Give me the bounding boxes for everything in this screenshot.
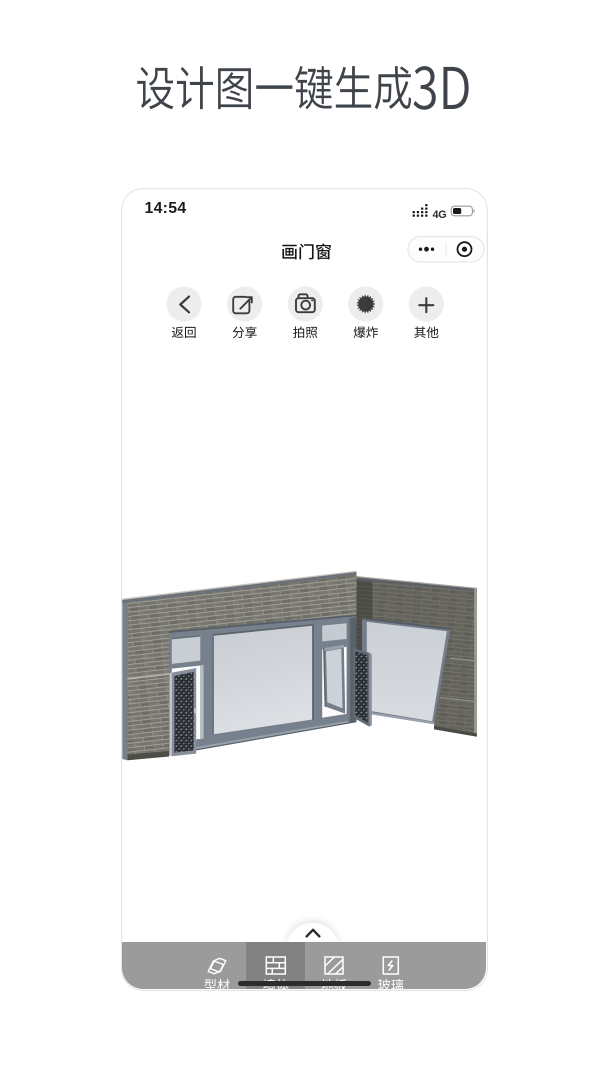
- svg-text:4G: 4G: [433, 209, 447, 221]
